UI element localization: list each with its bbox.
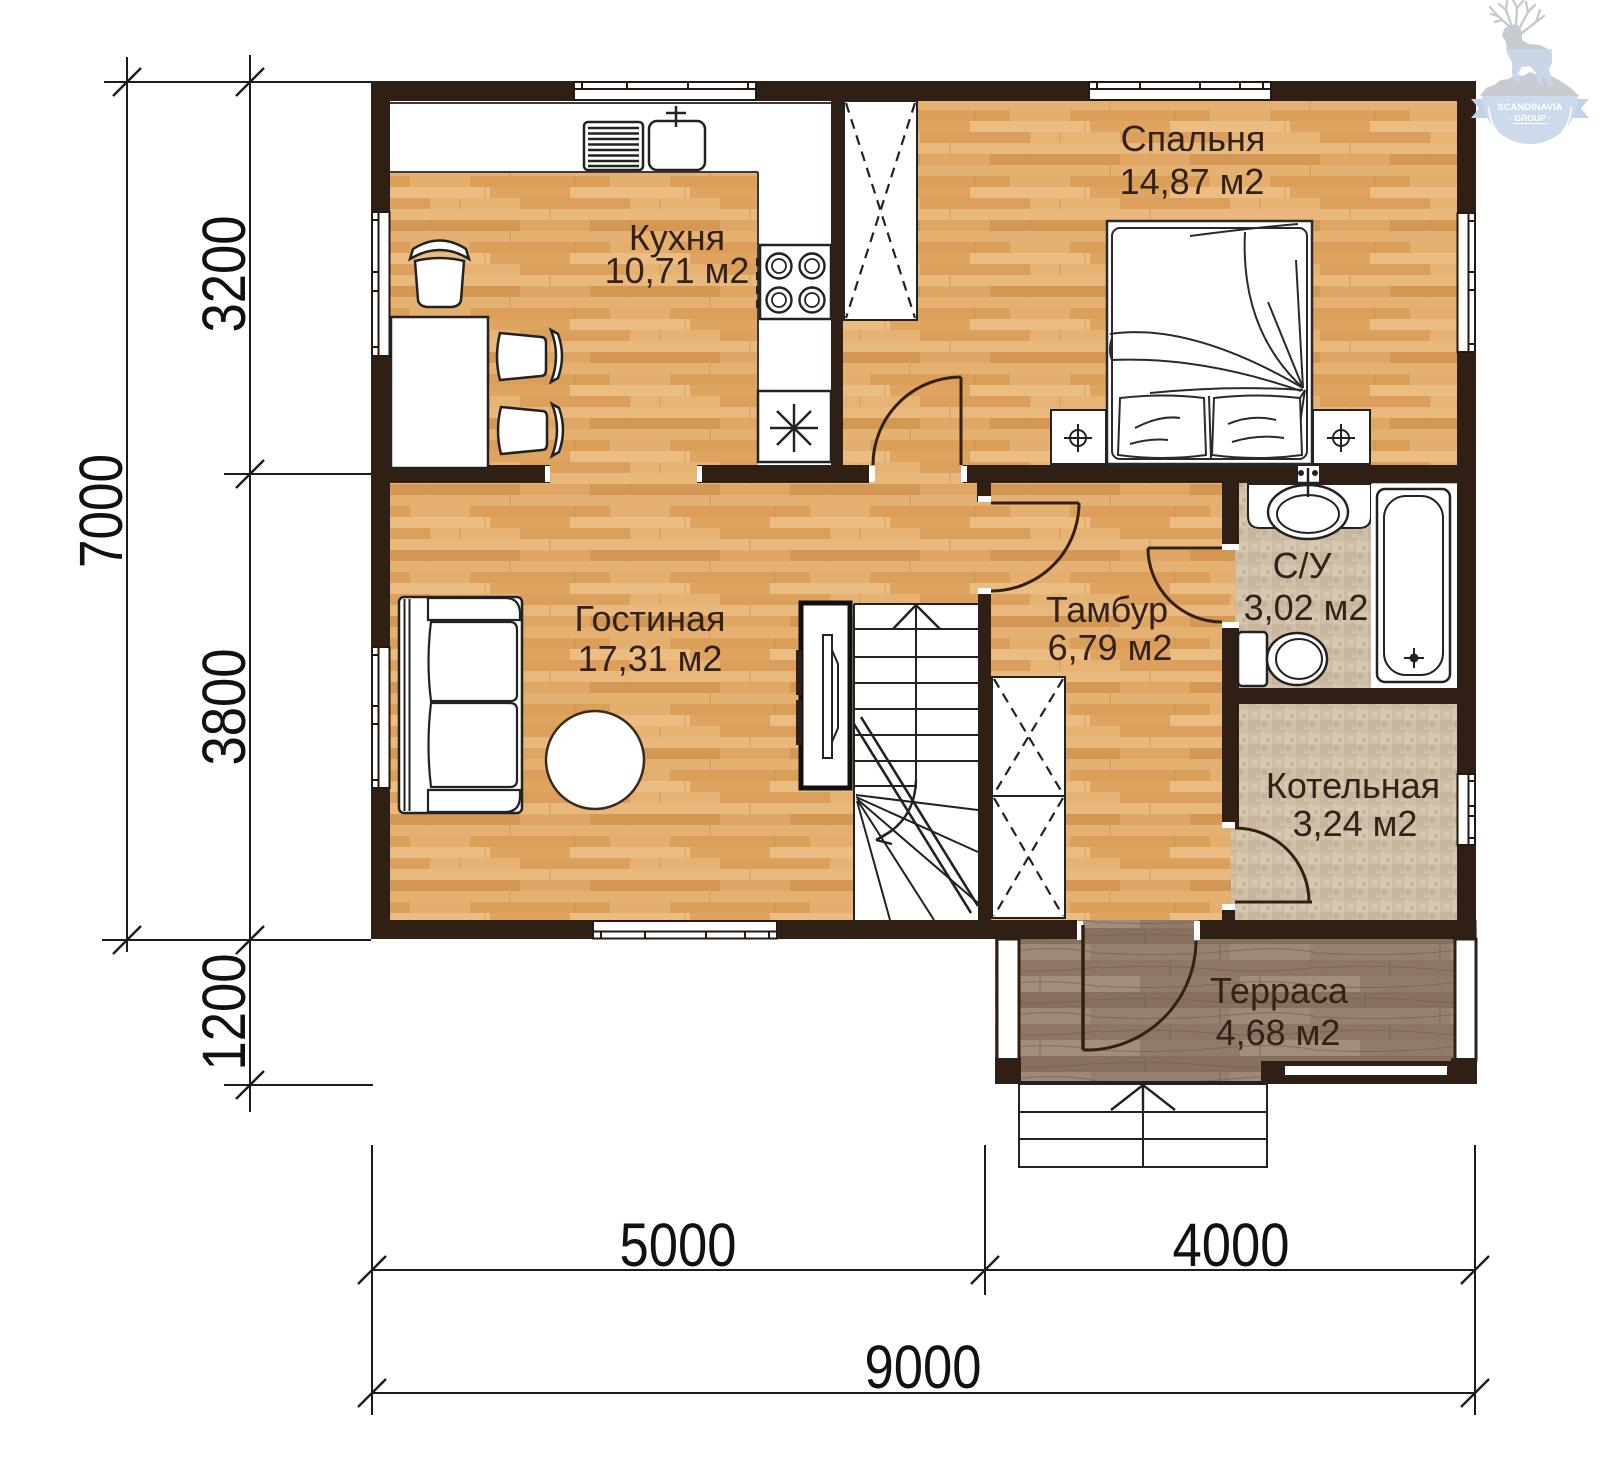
svg-text:SCANDINAVIA: SCANDINAVIA — [1497, 102, 1562, 113]
svg-text:3200: 3200 — [190, 216, 258, 333]
svg-text:1200: 1200 — [190, 954, 258, 1071]
svg-text:Тамбур: Тамбур — [1046, 589, 1168, 630]
svg-text:6,79 м2: 6,79 м2 — [1048, 627, 1173, 668]
svg-text:14,87 м2: 14,87 м2 — [1120, 161, 1265, 202]
svg-text:9000: 9000 — [865, 1333, 982, 1401]
svg-text:Терраса: Терраса — [1210, 970, 1349, 1011]
svg-text:С/У: С/У — [1273, 545, 1333, 586]
svg-text:5000: 5000 — [620, 1211, 737, 1279]
svg-text:3,24 м2: 3,24 м2 — [1293, 803, 1418, 844]
svg-text:Гостиная: Гостиная — [574, 598, 725, 639]
svg-text:7000: 7000 — [67, 454, 135, 568]
svg-text:3800: 3800 — [190, 649, 258, 766]
svg-text:4000: 4000 — [1173, 1211, 1290, 1279]
svg-text:· GROUP ·: · GROUP · — [1509, 113, 1550, 123]
svg-text:Спальня: Спальня — [1121, 118, 1266, 159]
svg-text:4,68 м2: 4,68 м2 — [1216, 1012, 1341, 1053]
svg-text:Котельная: Котельная — [1266, 765, 1440, 806]
svg-text:17,31 м2: 17,31 м2 — [578, 638, 723, 679]
svg-text:10,71 м2: 10,71 м2 — [605, 250, 750, 291]
svg-text:3,02 м2: 3,02 м2 — [1244, 587, 1369, 628]
